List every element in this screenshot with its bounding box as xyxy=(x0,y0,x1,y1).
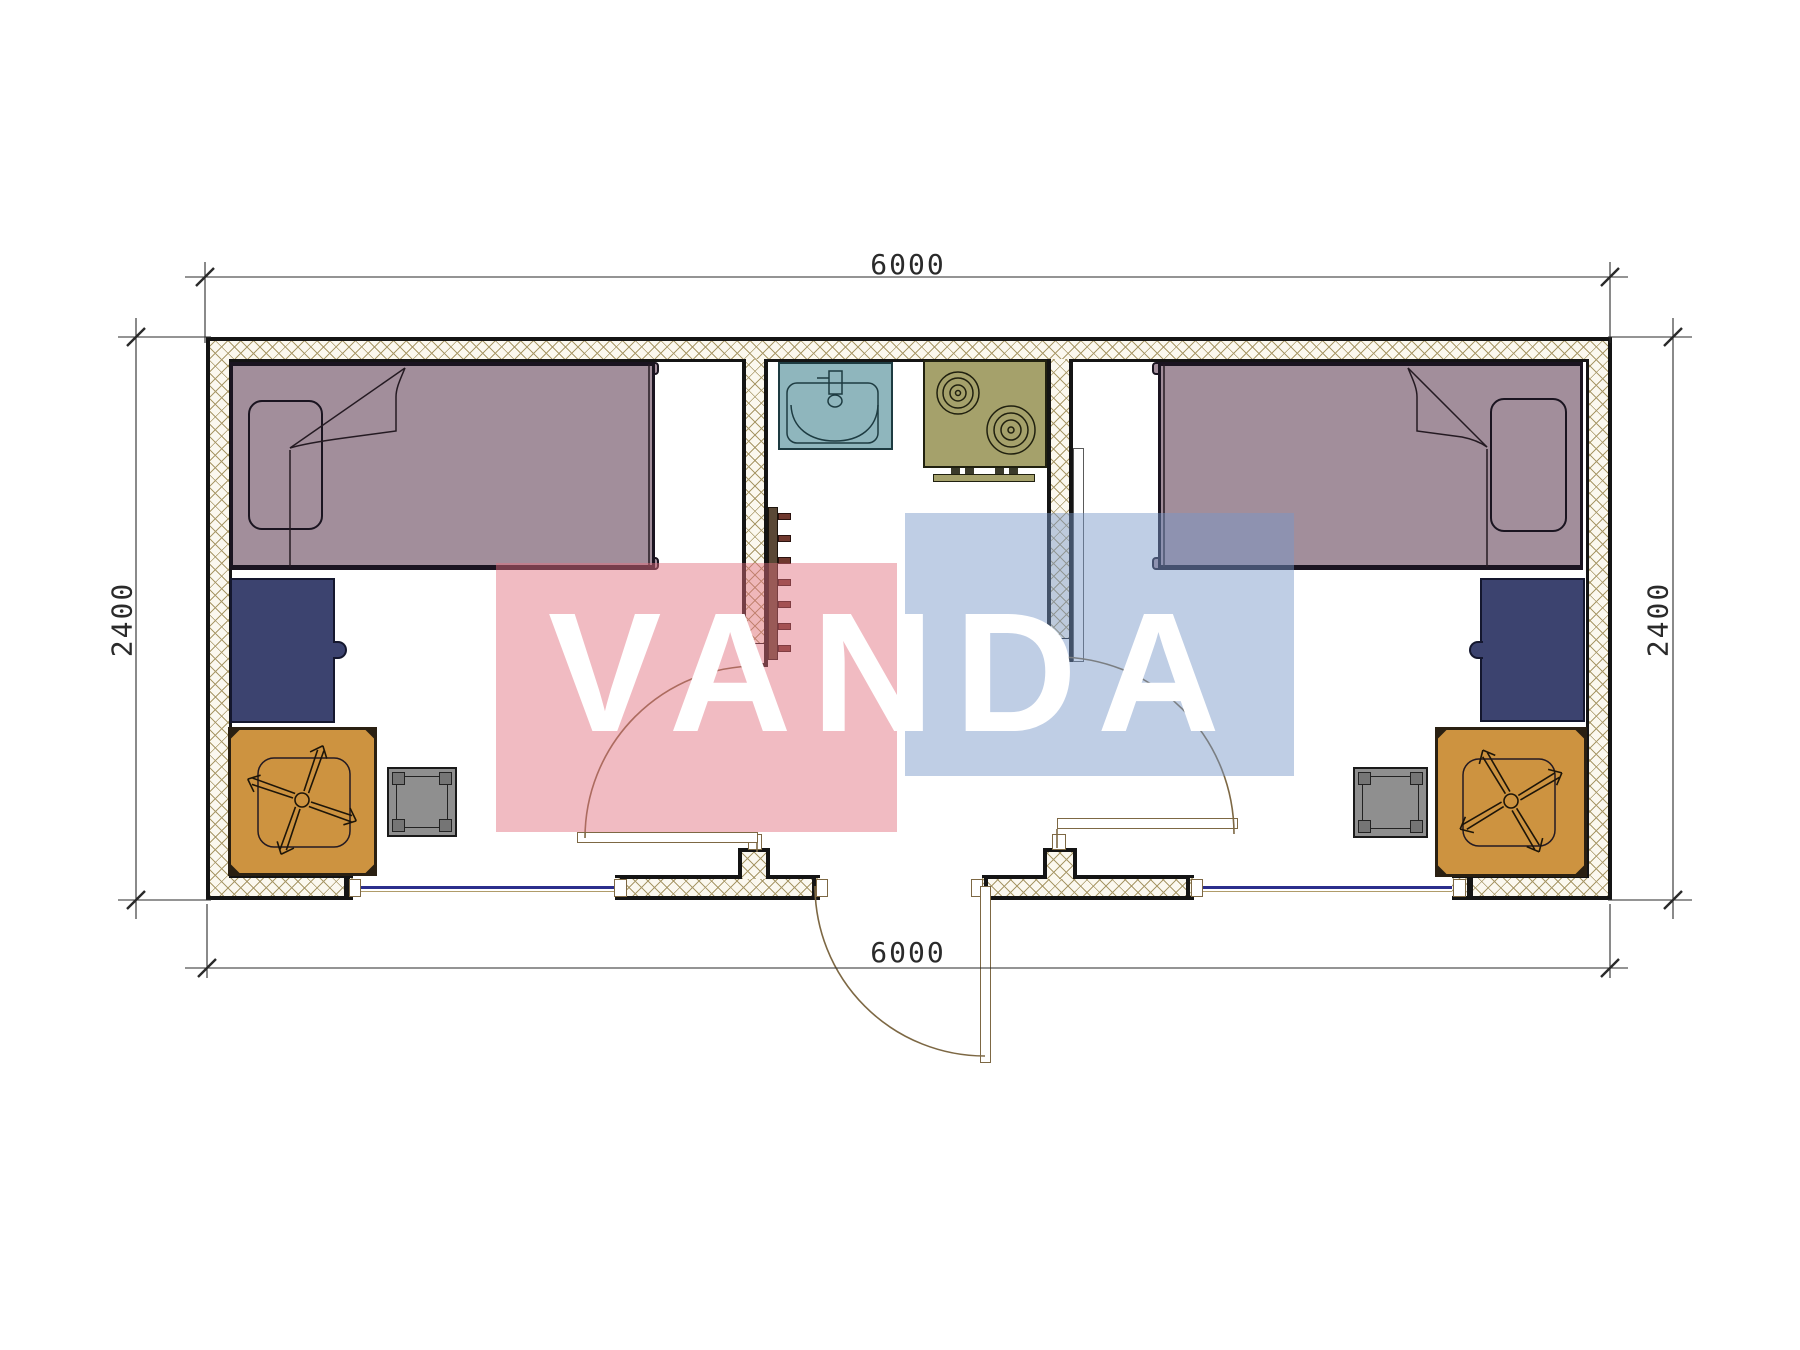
blanket-fold-left xyxy=(290,364,649,567)
watermark-logo-text: VANDA xyxy=(548,588,1240,758)
dimension-label-top: 6000 xyxy=(848,248,968,281)
dimension-label-left: 2400 xyxy=(106,560,139,680)
floor-plan-canvas: VANDA 6000 6000 2400 2400 xyxy=(0,0,1800,1350)
stove-burners-icon xyxy=(937,372,1035,454)
sink-basin-icon xyxy=(787,371,878,443)
dimension-label-bottom: 6000 xyxy=(848,936,968,969)
dimension-label-right: 2400 xyxy=(1642,560,1675,680)
